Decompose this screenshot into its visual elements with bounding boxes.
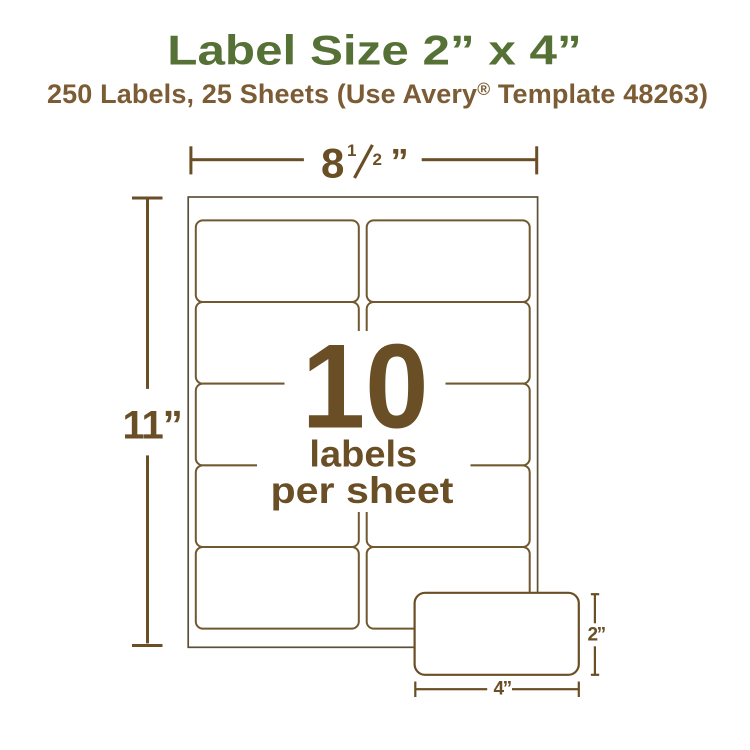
svg-text:2: 2: [373, 150, 382, 169]
svg-text:11”: 11”: [123, 404, 182, 448]
svg-text:”: ”: [391, 141, 409, 182]
svg-text:labels: labels: [309, 434, 417, 475]
svg-text:per sheet: per sheet: [271, 470, 454, 511]
svg-text:8: 8: [321, 140, 344, 187]
svg-text:4”: 4”: [494, 678, 512, 699]
svg-text:250 Labels, 25 Sheets (Use Ave: 250 Labels, 25 Sheets (Use Avery® Templa…: [47, 79, 708, 109]
svg-text:2”: 2”: [588, 624, 606, 645]
svg-text:1: 1: [347, 141, 356, 160]
svg-text:Label Size 2” x 4”: Label Size 2” x 4”: [167, 27, 581, 74]
